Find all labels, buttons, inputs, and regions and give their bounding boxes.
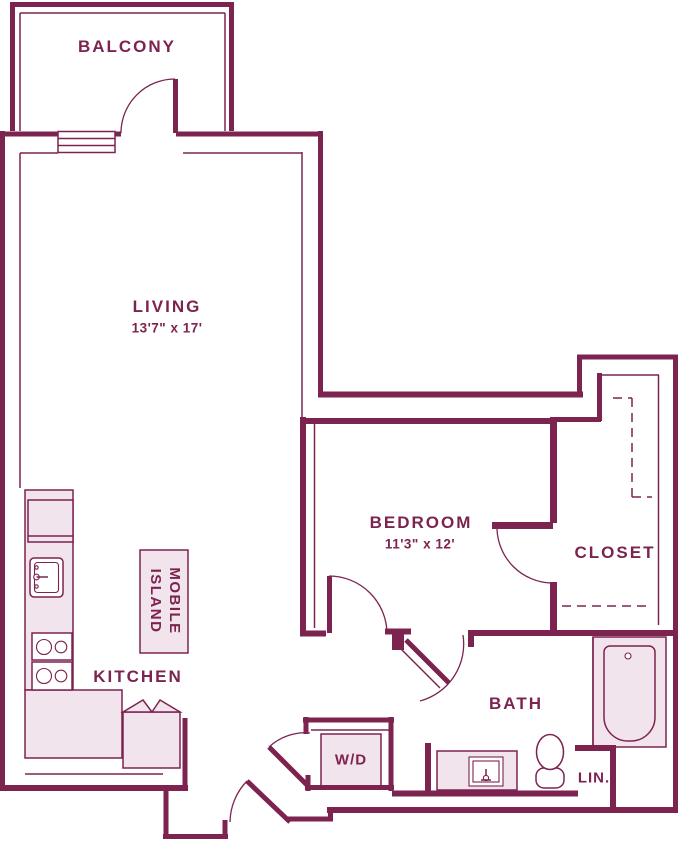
- closet-label: CLOSET: [575, 543, 656, 563]
- living-label: LIVING: [133, 297, 202, 317]
- floor-plan: BALCONY LIVING 13'7" x 17' BEDROOM 11'3"…: [0, 0, 680, 844]
- balcony-door: [121, 79, 176, 133]
- closet-shelf-dashes: [562, 398, 652, 606]
- balcony-window-icon: [58, 132, 115, 153]
- bath-label: BATH: [489, 694, 543, 714]
- kitchen-sink-icon: [30, 558, 63, 597]
- bath-door: [406, 635, 464, 701]
- balcony-label: BALCONY: [78, 37, 176, 57]
- bathtub-icon: [593, 637, 666, 747]
- mobile-island-label: MOBILE ISLAND: [145, 557, 183, 645]
- toilet-icon: [536, 735, 564, 789]
- laundry-door: [269, 733, 310, 786]
- bedroom-label: BEDROOM: [370, 513, 473, 533]
- stove-icon: [32, 633, 72, 690]
- bedroom-door: [329, 576, 387, 634]
- entry-door: [230, 781, 290, 822]
- refrigerator-icon: [28, 500, 73, 542]
- bedroom-dimensions: 11'3" x 12': [385, 537, 455, 552]
- floor-plan-drawing: [0, 0, 680, 844]
- vanity-sink-icon: [437, 751, 517, 790]
- linen-label: LIN.: [578, 770, 610, 787]
- living-dimensions: 13'7" x 17': [132, 321, 203, 336]
- kitchen-label: KITCHEN: [93, 667, 183, 687]
- closet-door: [492, 526, 553, 584]
- base-cabinet-icon: [123, 700, 180, 768]
- laundry-label: W/D: [335, 752, 367, 769]
